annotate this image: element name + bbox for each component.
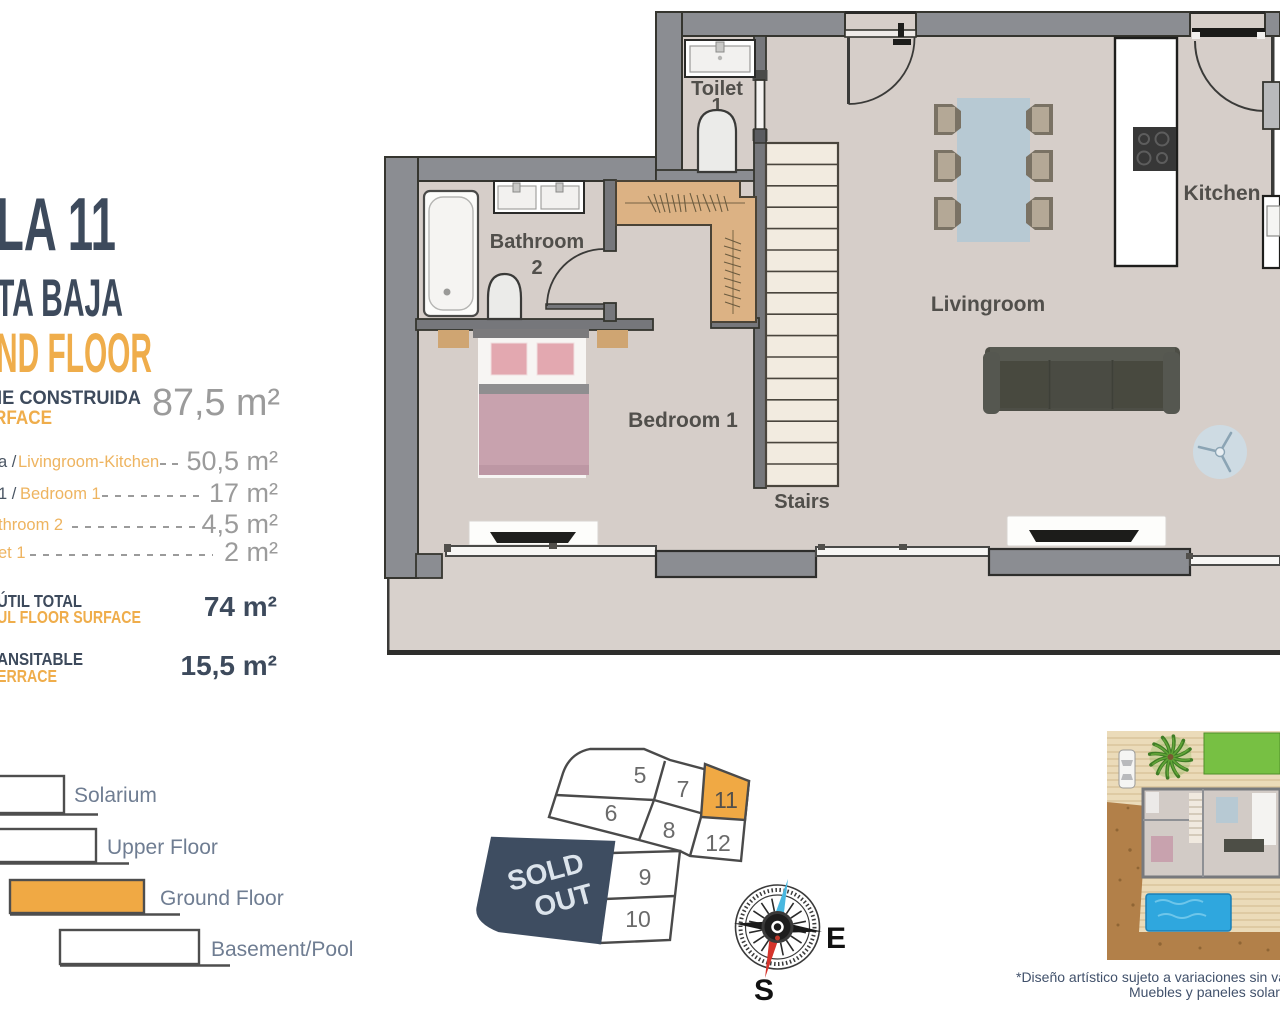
svg-text:Stairs: Stairs xyxy=(774,491,830,513)
svg-text:Muebles y paneles solares no i: Muebles y paneles solares no incluidos. xyxy=(1129,984,1280,1000)
svg-text:12: 12 xyxy=(705,830,731,856)
svg-text:Ground Floor: Ground Floor xyxy=(160,887,284,910)
svg-text:*Diseño artístico sujeto a var: *Diseño artístico sujeto a variaciones s… xyxy=(1016,969,1280,985)
svg-text:9: 9 xyxy=(639,864,652,890)
svg-text:Bedroom 1: Bedroom 1 xyxy=(20,485,101,503)
svg-text:IE CONSTRUIDA: IE CONSTRUIDA xyxy=(0,388,141,409)
svg-text:LA 11: LA 11 xyxy=(0,182,116,266)
svg-text:50,5 m²: 50,5 m² xyxy=(186,446,278,476)
svg-text:S: S xyxy=(754,974,774,1007)
svg-text:74 m²: 74 m² xyxy=(204,591,277,622)
svg-text:7: 7 xyxy=(677,776,690,802)
svg-text:15,5 m²: 15,5 m² xyxy=(181,650,278,681)
svg-text:throom 2: throom 2 xyxy=(0,516,63,534)
svg-text:Kitchen: Kitchen xyxy=(1183,182,1260,205)
svg-text:4,5 m²: 4,5 m² xyxy=(201,509,278,539)
svg-text:RFACE: RFACE xyxy=(0,408,52,429)
svg-text:a /: a / xyxy=(0,453,17,471)
svg-text:E: E xyxy=(826,922,846,955)
svg-text:Basement/Pool: Basement/Pool xyxy=(211,938,353,961)
svg-text:ND FLOOR: ND FLOOR xyxy=(0,321,152,384)
svg-text:17 m²: 17 m² xyxy=(209,478,278,508)
svg-text:Livingroom-Kitchen: Livingroom-Kitchen xyxy=(18,453,159,471)
svg-text:et 1: et 1 xyxy=(0,544,26,562)
svg-text:10: 10 xyxy=(625,906,651,932)
svg-text:Solarium: Solarium xyxy=(74,784,157,807)
svg-text:Upper Floor: Upper Floor xyxy=(107,836,218,859)
svg-text:5: 5 xyxy=(634,762,647,788)
svg-text:Bedroom 1: Bedroom 1 xyxy=(628,409,738,432)
svg-text:2 m²: 2 m² xyxy=(224,537,278,567)
svg-text:6: 6 xyxy=(605,800,618,826)
svg-text:TA BAJA: TA BAJA xyxy=(0,269,123,328)
svg-text:1 /: 1 / xyxy=(0,485,17,503)
svg-text:ERRACE: ERRACE xyxy=(0,666,57,686)
svg-text:11: 11 xyxy=(714,787,738,813)
svg-text:Livingroom: Livingroom xyxy=(931,293,1045,316)
svg-text:Bathroom: Bathroom xyxy=(490,231,584,253)
svg-text:8: 8 xyxy=(663,817,676,843)
svg-text:2: 2 xyxy=(531,257,542,279)
svg-text:87,5 m²: 87,5 m² xyxy=(152,382,280,424)
svg-text:UL FLOOR SURFACE: UL FLOOR SURFACE xyxy=(0,607,141,627)
